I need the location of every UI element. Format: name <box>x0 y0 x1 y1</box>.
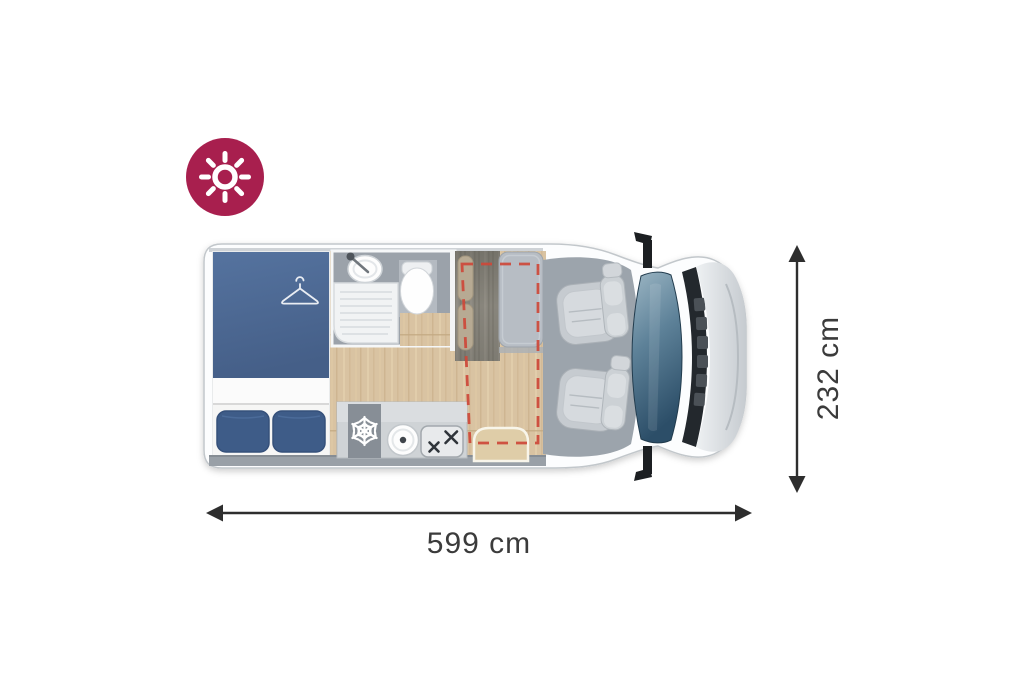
length-dimension: 599 cm <box>206 505 752 561</box>
wardrobe-cabinet <box>499 252 543 353</box>
van-floorplan: 599 cm 232 cm <box>0 0 1024 699</box>
floorplan-canvas: 599 cm 232 cm <box>0 0 1024 699</box>
washroom <box>332 251 455 351</box>
shower-tray <box>334 283 398 343</box>
double-bed <box>212 251 330 455</box>
arrow-right-icon <box>735 505 752 522</box>
height-dimension: 232 cm <box>789 245 845 493</box>
arrow-left-icon <box>206 505 223 522</box>
two-burner-stove <box>421 426 463 457</box>
fridge <box>348 404 381 458</box>
washroom-wall <box>450 251 455 351</box>
kitchen-block <box>337 402 467 458</box>
arrow-up-icon <box>789 245 806 262</box>
arrow-down-icon <box>789 476 806 493</box>
removable-table <box>474 428 528 461</box>
length-label: 599 cm <box>427 527 531 560</box>
height-label: 232 cm <box>812 316 845 420</box>
kitchen-sink <box>388 425 419 456</box>
washroom-wood-patch <box>400 313 455 346</box>
